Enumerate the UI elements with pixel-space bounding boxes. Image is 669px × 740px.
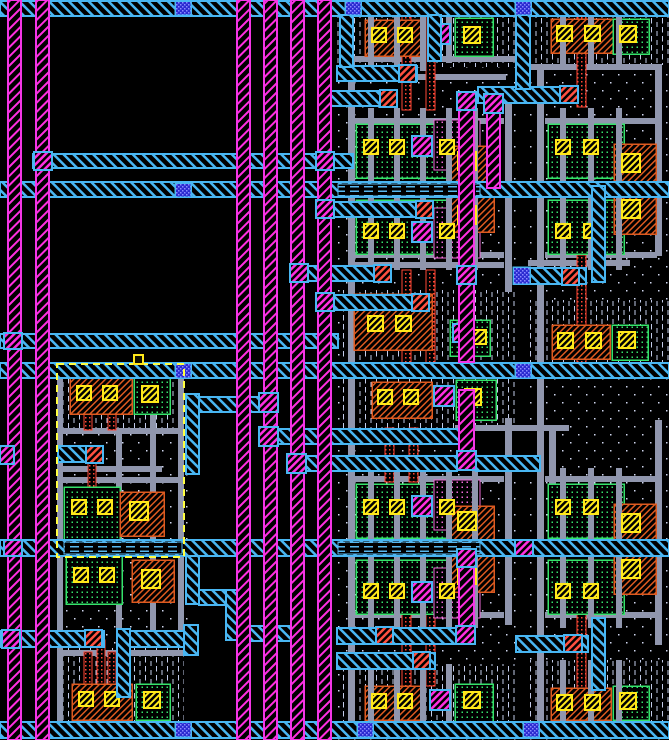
metal1-wire[interactable] — [516, 15, 530, 89]
contact[interactable] — [464, 692, 480, 708]
contact[interactable] — [458, 512, 476, 530]
metal1-wire[interactable] — [0, 334, 338, 348]
via-m1-m2[interactable] — [4, 333, 22, 349]
contact[interactable] — [142, 386, 158, 402]
metal1-wire[interactable] — [186, 556, 199, 604]
via-m2-m3[interactable] — [357, 722, 373, 737]
metal2-rail[interactable] — [459, 108, 474, 362]
via-m2-m3[interactable] — [175, 183, 191, 197]
poly-contact[interactable] — [376, 627, 393, 644]
metal1-wire[interactable] — [0, 182, 669, 197]
via-m1-m2[interactable] — [457, 266, 476, 284]
metal1-wire[interactable] — [130, 631, 188, 647]
contact[interactable] — [556, 500, 570, 514]
metal1-wire[interactable] — [277, 429, 463, 444]
contact[interactable] — [72, 500, 86, 514]
contact[interactable] — [586, 333, 601, 348]
contact[interactable] — [390, 224, 404, 238]
poly-contact[interactable] — [412, 294, 429, 311]
via-m1-m2[interactable] — [515, 540, 533, 556]
metal2-rail[interactable] — [237, 0, 250, 740]
metal1-wire[interactable] — [184, 625, 198, 655]
metal2-rail[interactable] — [36, 0, 49, 740]
contact[interactable] — [440, 584, 454, 598]
via-m2-m3[interactable] — [175, 722, 191, 737]
metal1-wire[interactable] — [428, 15, 441, 61]
poly-wire[interactable] — [426, 612, 435, 686]
contact[interactable] — [404, 390, 418, 404]
contact[interactable] — [585, 26, 600, 41]
contact[interactable] — [372, 694, 386, 708]
metal1-wire[interactable] — [0, 1, 669, 16]
metal2-rail[interactable] — [459, 390, 474, 452]
contact[interactable] — [556, 224, 570, 238]
via-m1-m2[interactable] — [287, 454, 306, 473]
contact[interactable] — [364, 224, 378, 238]
poly-contact[interactable] — [380, 90, 397, 107]
metal3-strap[interactable] — [178, 374, 184, 648]
poly-contact[interactable] — [413, 652, 430, 669]
metal3-strap[interactable] — [560, 15, 566, 69]
metal3-strap[interactable] — [394, 15, 400, 71]
metal3-strap[interactable] — [394, 664, 400, 722]
contact[interactable] — [556, 140, 570, 154]
contact[interactable] — [142, 570, 160, 588]
contact[interactable] — [390, 140, 404, 154]
poly-contact[interactable] — [86, 446, 103, 463]
contact[interactable] — [79, 692, 93, 706]
poly-contact[interactable] — [374, 265, 391, 282]
contact[interactable] — [620, 26, 636, 42]
metal1-wire[interactable] — [0, 363, 669, 378]
contact[interactable] — [396, 316, 411, 331]
poly-contact[interactable] — [564, 635, 582, 652]
via-m1-m2[interactable] — [412, 222, 432, 242]
metal3-strap[interactable] — [560, 660, 566, 722]
via-m1-m2[interactable] — [456, 626, 475, 644]
via-m1-m2[interactable] — [4, 540, 22, 556]
metal3-strap[interactable] — [368, 664, 374, 722]
metal2-rail[interactable] — [8, 0, 21, 740]
poly-contact[interactable] — [562, 268, 579, 285]
selection-origin-handle[interactable] — [134, 355, 143, 364]
via-m1-m2[interactable] — [34, 152, 52, 170]
via-m1-m2[interactable] — [259, 393, 278, 412]
metal3-strap[interactable] — [58, 466, 162, 472]
contact[interactable] — [585, 695, 600, 710]
metal3-strap[interactable] — [505, 418, 512, 625]
poly-contact[interactable] — [416, 201, 433, 218]
metal1-wire[interactable] — [117, 629, 130, 697]
layout-viewport — [0, 0, 669, 740]
routing-channel[interactable] — [64, 542, 182, 554]
contact[interactable] — [398, 28, 412, 42]
layout-canvas[interactable] — [0, 0, 669, 740]
metal3-strap[interactable] — [537, 70, 544, 722]
poly-contact[interactable] — [399, 65, 416, 82]
via-m2-m3[interactable] — [523, 722, 539, 737]
metal1-wire[interactable] — [186, 394, 199, 474]
contact[interactable] — [372, 28, 386, 42]
contact[interactable] — [130, 502, 148, 520]
via-m1-m2[interactable] — [412, 136, 432, 156]
contact[interactable] — [77, 386, 91, 400]
contact[interactable] — [584, 584, 598, 598]
contact[interactable] — [390, 584, 404, 598]
contact[interactable] — [103, 386, 117, 400]
contact[interactable] — [440, 140, 454, 154]
contact[interactable] — [440, 500, 454, 514]
metal1-wire[interactable] — [592, 618, 605, 690]
contact[interactable] — [464, 27, 480, 43]
via-m1-m2[interactable] — [412, 496, 432, 516]
via-m1-m2[interactable] — [430, 690, 450, 710]
contact[interactable] — [364, 140, 378, 154]
poly-wire[interactable] — [402, 612, 411, 686]
metal2-rail[interactable] — [487, 112, 500, 188]
contact[interactable] — [368, 316, 383, 331]
via-m2-m3[interactable] — [345, 1, 361, 15]
metal1-wire[interactable] — [33, 154, 353, 168]
metal1-wire[interactable] — [476, 456, 540, 471]
contact[interactable] — [584, 500, 598, 514]
contact[interactable] — [620, 693, 636, 709]
metal1-wire[interactable] — [0, 722, 669, 738]
via-m1-m2[interactable] — [0, 446, 14, 464]
contact[interactable] — [619, 332, 635, 348]
via-m1-m2[interactable] — [259, 427, 278, 446]
metal1-wire[interactable] — [592, 186, 605, 282]
contact[interactable] — [622, 154, 640, 172]
metal3-strap[interactable] — [420, 664, 426, 722]
metal2-rail[interactable] — [318, 0, 331, 740]
via-m2-m3[interactable] — [515, 363, 531, 378]
via-m1-m2[interactable] — [290, 264, 308, 282]
metal3-strap[interactable] — [368, 15, 374, 71]
contact[interactable] — [74, 568, 88, 582]
via-m2-m3[interactable] — [175, 1, 191, 15]
contact[interactable] — [144, 692, 160, 708]
contact[interactable] — [557, 26, 572, 41]
contact[interactable] — [584, 140, 598, 154]
contact[interactable] — [556, 584, 570, 598]
via-m1-m2[interactable] — [316, 293, 334, 311]
contact[interactable] — [558, 333, 573, 348]
via-m1-m2[interactable] — [316, 200, 334, 218]
via-m1-m2[interactable] — [412, 582, 432, 602]
metal2-rail[interactable] — [291, 0, 304, 740]
metal3-strap[interactable] — [352, 118, 504, 124]
metal3-strap[interactable] — [616, 660, 622, 722]
via-m1-m2[interactable] — [2, 630, 20, 648]
contact[interactable] — [622, 200, 640, 218]
via-m1-m2[interactable] — [457, 92, 476, 110]
metal1-wire[interactable] — [337, 628, 463, 644]
via-m2-m3[interactable] — [515, 1, 531, 15]
contact[interactable] — [100, 568, 114, 582]
via-m1-m2[interactable] — [457, 549, 476, 567]
contact[interactable] — [390, 500, 404, 514]
metal3-strap[interactable] — [420, 15, 426, 71]
metal2-rail[interactable] — [264, 0, 277, 740]
contact[interactable] — [622, 560, 640, 578]
via-m1-m2[interactable] — [484, 94, 503, 113]
via-m2-m3[interactable] — [513, 267, 530, 284]
contact[interactable] — [364, 584, 378, 598]
contact[interactable] — [364, 500, 378, 514]
contact[interactable] — [378, 390, 392, 404]
contact[interactable] — [440, 224, 454, 238]
contact[interactable] — [98, 500, 112, 514]
via-m1-m2[interactable] — [316, 152, 334, 170]
contact[interactable] — [557, 695, 572, 710]
via-m1-m2[interactable] — [457, 451, 476, 470]
poly-contact[interactable] — [85, 630, 102, 647]
contact[interactable] — [622, 514, 640, 532]
poly-contact[interactable] — [560, 86, 578, 103]
metal1-wire[interactable] — [340, 15, 353, 67]
contact[interactable] — [398, 694, 412, 708]
metal1-wire[interactable] — [199, 397, 261, 412]
via-m1-m2[interactable] — [434, 386, 454, 406]
metal3-strap[interactable] — [588, 15, 594, 69]
metal3-strap[interactable] — [352, 476, 504, 482]
